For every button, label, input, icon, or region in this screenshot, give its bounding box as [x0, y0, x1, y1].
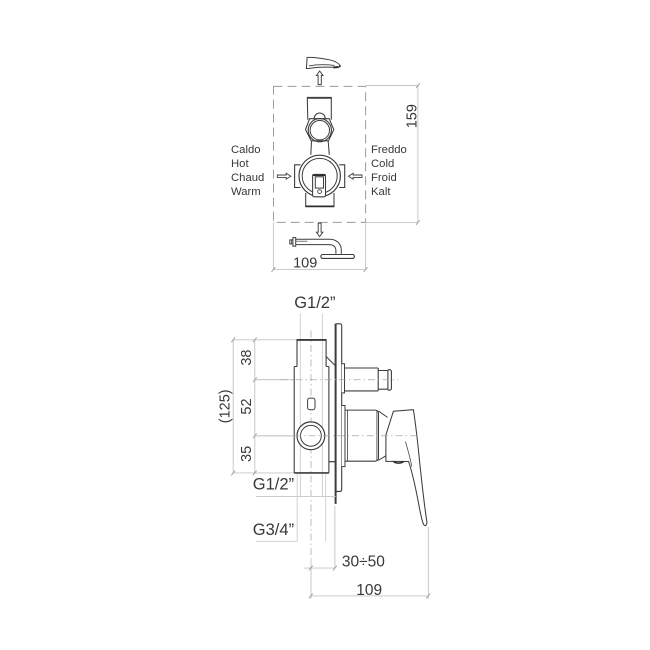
svg-text:(125): (125)	[218, 389, 234, 423]
svg-text:35: 35	[239, 446, 255, 462]
svg-text:109: 109	[293, 255, 317, 271]
svg-text:G1/2”: G1/2”	[294, 294, 335, 312]
svg-text:30÷50: 30÷50	[342, 553, 385, 570]
svg-text:52: 52	[239, 398, 255, 414]
svg-text:Freddo: Freddo	[371, 144, 407, 156]
svg-text:Hot: Hot	[231, 158, 249, 170]
svg-text:109: 109	[356, 582, 382, 599]
svg-text:38: 38	[239, 350, 255, 366]
svg-text:Kalt: Kalt	[371, 186, 391, 198]
svg-text:Warm: Warm	[231, 186, 261, 198]
svg-text:Cold: Cold	[371, 158, 394, 170]
svg-text:159: 159	[405, 104, 421, 128]
svg-text:G3/4”: G3/4”	[253, 521, 294, 539]
svg-text:Froid: Froid	[371, 172, 397, 184]
svg-text:Chaud: Chaud	[231, 172, 264, 184]
svg-text:Caldo: Caldo	[231, 144, 261, 156]
svg-text:G1/2”: G1/2”	[253, 476, 294, 494]
